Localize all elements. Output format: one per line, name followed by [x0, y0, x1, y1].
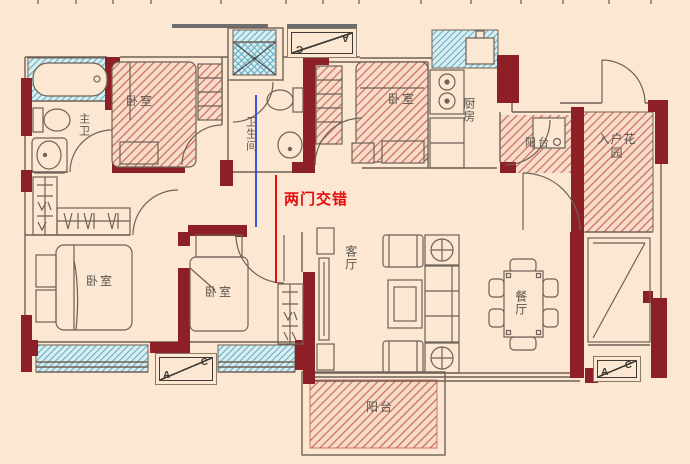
- room-label-dining-room: 餐厅: [513, 290, 527, 316]
- floor-plan: 主卫 卧室 卫生间 卧室 厨房 阳台 入户花园 卧室 卧室 客厅 餐厅 阳台 两…: [0, 0, 690, 464]
- ac-platform-top: A C: [287, 28, 357, 58]
- ac-diagonal: A C: [159, 357, 213, 381]
- room-label-main-balcony: 阳台: [366, 401, 394, 415]
- room-label-bedroom-top-middle: 卧室: [388, 93, 416, 107]
- ac-letter-c: C: [201, 357, 208, 368]
- ac-letter-a: A: [342, 32, 349, 43]
- room-label-master-bath: 主卫: [77, 113, 90, 137]
- bedroom-top-left-furniture: [112, 62, 222, 167]
- ac-diagonal: A C: [291, 32, 353, 54]
- room-label-bedroom-bottom-mid: 卧室: [205, 286, 233, 300]
- annotation-lines: [256, 95, 276, 283]
- room-label-bedroom-top-left: 卧室: [126, 95, 154, 109]
- ac-platform-bottom-right: A C: [593, 356, 641, 382]
- ac-diagonal: A C: [597, 360, 637, 378]
- bedroom-bottom-left-furniture: [36, 245, 132, 330]
- room-label-kitchen: 厨房: [461, 97, 475, 123]
- room-label-living-room: 客厅: [343, 245, 357, 271]
- living-room-furniture: [317, 228, 459, 373]
- room-label-entry-garden: 入户花园: [596, 133, 638, 161]
- ac-platform-bottom-left: A C: [155, 353, 217, 385]
- annotation-two-doors-crossed: 两门交错: [284, 188, 348, 209]
- ac-letter-a: A: [601, 367, 608, 378]
- room-label-bedroom-bottom-left: 卧室: [86, 275, 114, 289]
- dressing-wardrobes: [33, 177, 130, 235]
- entry-closet: [588, 238, 650, 342]
- master-bath-fixtures: [32, 63, 107, 173]
- floor-plan-drawing: [0, 0, 690, 464]
- ac-letter-a: A: [163, 370, 170, 381]
- bedroom-top-middle-furniture: [316, 62, 428, 163]
- dimension-ticks: [37, 0, 652, 28]
- ac-letter-c: C: [625, 360, 632, 371]
- ac-letter-c: C: [296, 43, 303, 54]
- room-label-bathroom: 卫生间: [244, 116, 257, 152]
- room-label-service-balcony: 阳台: [525, 137, 551, 150]
